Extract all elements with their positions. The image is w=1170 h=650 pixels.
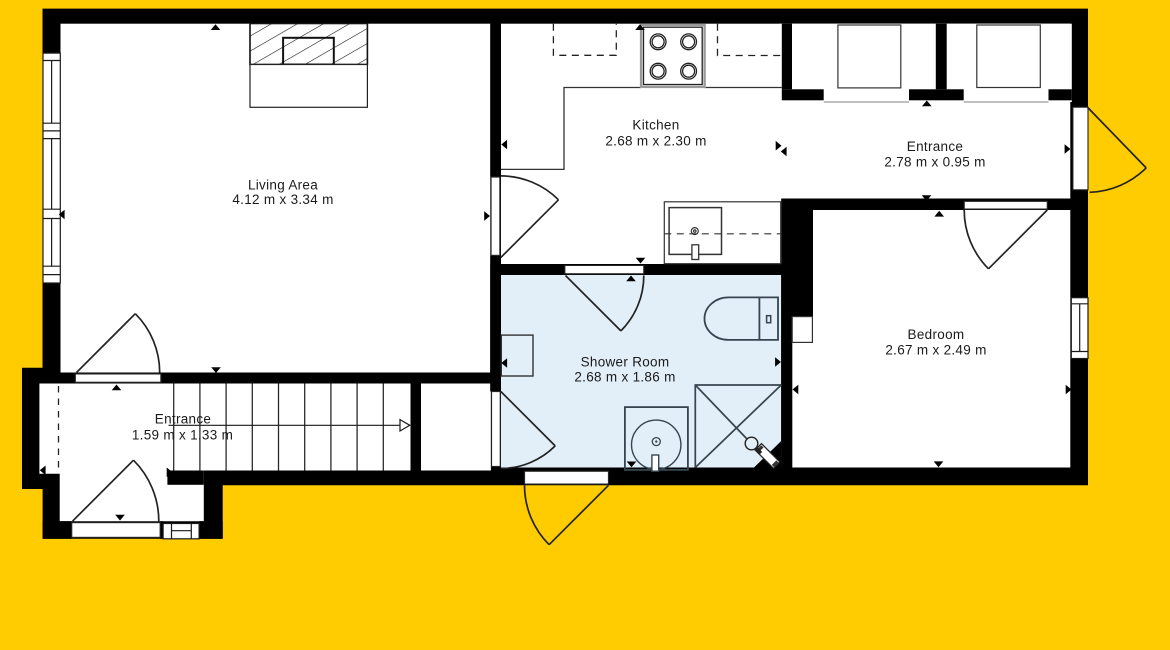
svg-text:2.68 m x 2.30 m: 2.68 m x 2.30 m (605, 134, 706, 149)
svg-text:2.67 m x 2.49 m: 2.67 m x 2.49 m (885, 343, 986, 358)
svg-text:Living Area: Living Area (248, 178, 318, 193)
svg-text:2.78 m x 0.95 m: 2.78 m x 0.95 m (884, 155, 985, 170)
svg-text:Bedroom: Bedroom (908, 327, 965, 342)
svg-text:1.59 m x 1.33 m: 1.59 m x 1.33 m (132, 428, 233, 443)
svg-text:Entrance: Entrance (907, 139, 963, 154)
svg-text:4.12 m x 3.34 m: 4.12 m x 3.34 m (232, 192, 333, 207)
svg-text:Shower Room: Shower Room (581, 355, 670, 370)
svg-text:Kitchen: Kitchen (632, 118, 679, 133)
svg-text:2.68 m x 1.86 m: 2.68 m x 1.86 m (574, 370, 675, 385)
svg-text:Entrance: Entrance (155, 412, 211, 427)
